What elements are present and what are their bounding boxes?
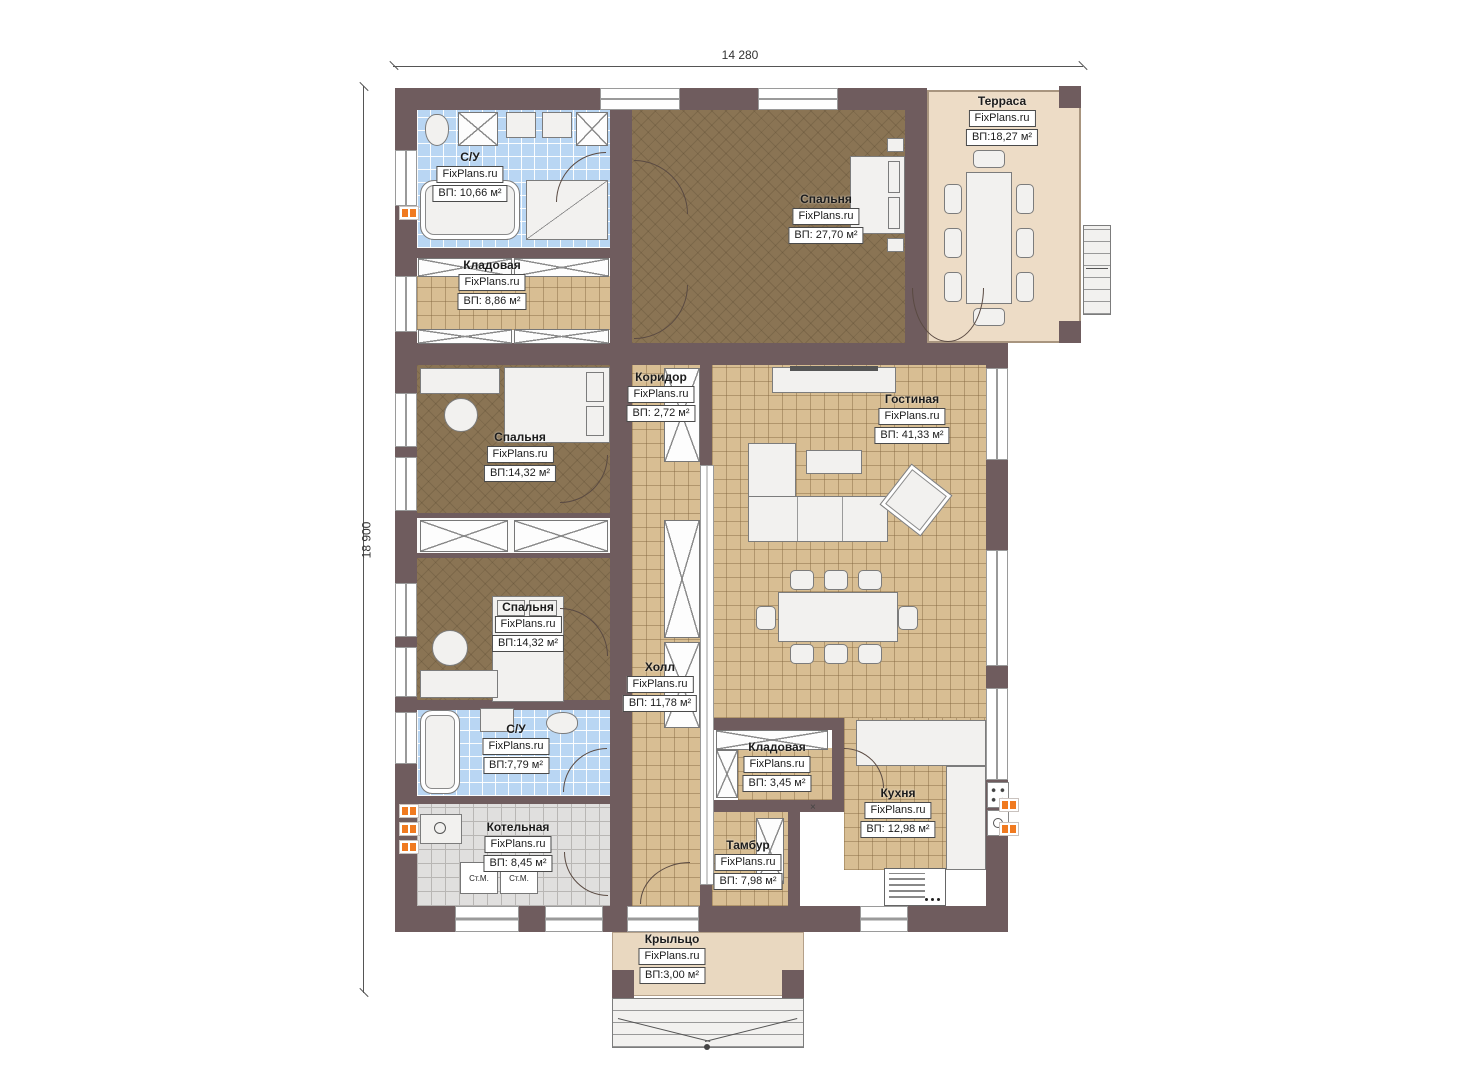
chair	[824, 570, 848, 590]
room-name: Гостиная	[885, 392, 939, 406]
room-name: С/У	[460, 150, 479, 164]
sofa-seat	[748, 496, 888, 542]
room-label-hall: Холл FixPlans.ru ВП: 11,78 м²	[623, 660, 697, 712]
room-label-bathroom-top: С/У FixPlans.ru ВП: 10,66 м²	[432, 150, 507, 202]
dimension-tick	[359, 82, 368, 91]
tv	[790, 366, 878, 371]
room-label-bedroom-top: Спальня FixPlans.ru ВП: 27,70 м²	[788, 192, 863, 244]
radiator	[999, 822, 1019, 836]
shelving	[514, 258, 609, 277]
room-area: ВП: 12,98 м²	[860, 821, 935, 838]
chair	[824, 644, 848, 664]
radiator	[399, 804, 419, 818]
chair	[858, 570, 882, 590]
room-area: ВП: 7,98 м²	[713, 873, 782, 890]
window	[860, 906, 908, 932]
floor-drain-mark: ×	[810, 802, 816, 813]
chair	[1016, 184, 1034, 214]
wall-storage-small-bottom	[712, 800, 844, 812]
pillow	[586, 372, 604, 402]
coffee-table	[806, 450, 862, 474]
pillow	[888, 197, 900, 229]
chair	[756, 606, 776, 630]
window	[758, 88, 838, 110]
toilet	[425, 114, 449, 146]
watermark: FixPlans.ru	[714, 854, 781, 871]
room-area: ВП: 8,86 м²	[457, 293, 526, 310]
window	[455, 906, 519, 932]
watermark: FixPlans.ru	[494, 616, 561, 633]
window	[545, 906, 603, 932]
room-area: ВП: 8,45 м²	[483, 855, 552, 872]
terrace-post	[1059, 321, 1081, 343]
radiator	[999, 798, 1019, 812]
room-area: ВП: 11,78 м²	[623, 695, 697, 712]
watermark: FixPlans.ru	[436, 166, 503, 183]
window	[986, 368, 1008, 460]
wall-wardrobe-band-bottom	[417, 553, 610, 558]
kitchen-counter-top	[856, 720, 986, 766]
room-name: С/У	[506, 722, 525, 736]
shelving	[418, 329, 512, 344]
room-area: ВП: 2,72 м²	[626, 405, 695, 422]
room-area: ВП:18,27 м²	[966, 129, 1038, 146]
wall-wardrobe-band-top	[417, 513, 610, 518]
room-name: Тамбур	[726, 838, 770, 852]
room-label-storage-small: Кладовая FixPlans.ru ВП: 3,45 м²	[742, 740, 811, 792]
room-area: ВП:7,79 м²	[483, 757, 549, 774]
wall-storage-small-top	[712, 718, 844, 730]
room-label-porch: Крыльцо FixPlans.ru ВП:3,00 м²	[638, 932, 705, 984]
wall-vestibule-right	[788, 812, 800, 906]
watermark: FixPlans.ru	[638, 948, 705, 965]
wall-bathroom-low-bottom	[417, 796, 610, 804]
floor-plan-canvas: 14 280 18 900	[0, 0, 1474, 1080]
entry-door-opening	[627, 906, 699, 932]
wardrobe	[514, 520, 608, 552]
wall-inner-vertical-main	[610, 110, 632, 906]
terrace-table	[966, 172, 1012, 304]
terrace-steps	[1083, 225, 1111, 315]
desk-chair	[444, 398, 478, 432]
wall-bathroom-top-bottom	[417, 248, 610, 258]
desk-chair	[432, 630, 468, 666]
watermark: FixPlans.ru	[864, 802, 931, 819]
room-area: ВП: 10,66 м²	[432, 185, 507, 202]
wall-inner-horizontal-main	[417, 343, 1008, 365]
window	[395, 712, 417, 764]
chair	[1016, 272, 1034, 302]
watermark: FixPlans.ru	[626, 676, 693, 693]
watermark: FixPlans.ru	[792, 208, 859, 225]
nightstand	[887, 238, 904, 252]
porch-arrow-dot	[704, 1044, 710, 1050]
watermark: FixPlans.ru	[627, 386, 694, 403]
pillow	[888, 161, 900, 193]
room-name: Спальня	[502, 600, 554, 614]
chair	[858, 644, 882, 664]
room-name: Крыльцо	[645, 932, 700, 946]
window	[395, 276, 417, 332]
porch-post	[782, 970, 804, 998]
window	[395, 457, 417, 511]
boiler-sink-basin	[434, 822, 446, 834]
room-area: ВП:14,32 м²	[484, 465, 556, 482]
room-area: ВП: 41,33 м²	[874, 427, 949, 444]
radiator	[399, 840, 419, 854]
wardrobe	[420, 520, 508, 552]
chair	[944, 184, 962, 214]
window	[600, 88, 680, 110]
desk	[420, 670, 498, 698]
room-label-vestibule: Тамбур FixPlans.ru ВП: 7,98 м²	[713, 838, 782, 890]
room-name: Кладовая	[463, 258, 520, 272]
room-name: Коридор	[635, 370, 687, 384]
sink	[506, 112, 536, 138]
room-label-bathroom-low: С/У FixPlans.ru ВП:7,79 м²	[482, 722, 549, 774]
washer-label: Ст.М.	[509, 874, 529, 883]
terrace-post	[1059, 86, 1081, 108]
wall-partition-cap	[700, 885, 712, 906]
dining-table	[778, 592, 898, 642]
room-label-corridor: Коридор FixPlans.ru ВП: 2,72 м²	[626, 370, 695, 422]
watermark: FixPlans.ru	[968, 110, 1035, 127]
cabinet	[576, 112, 608, 146]
terrace-steps-arrow	[1086, 268, 1108, 269]
chair	[973, 150, 1005, 168]
room-name: Терраса	[978, 94, 1026, 108]
room-label-boiler: Котельная FixPlans.ru ВП: 8,45 м²	[483, 820, 552, 872]
wall-storage-small-right	[832, 718, 844, 812]
watermark: FixPlans.ru	[484, 836, 551, 853]
window	[986, 550, 1008, 666]
wardrobe	[664, 520, 700, 638]
window	[395, 393, 417, 447]
room-name: Спальня	[494, 430, 546, 444]
window	[395, 150, 417, 206]
glass-partition-hall-living	[700, 465, 714, 885]
pillow	[586, 406, 604, 436]
window	[395, 647, 417, 697]
room-label-terrace: Терраса FixPlans.ru ВП:18,27 м²	[966, 94, 1038, 146]
watermark: FixPlans.ru	[743, 756, 810, 773]
bathtub	[420, 710, 460, 794]
dimension-width-label: 14 280	[722, 48, 759, 62]
watermark: FixPlans.ru	[482, 738, 549, 755]
watermark: FixPlans.ru	[458, 274, 525, 291]
room-label-kitchen: Кухня FixPlans.ru ВП: 12,98 м²	[860, 786, 935, 838]
room-label-bedroom-mid: Спальня FixPlans.ru ВП:14,32 м²	[484, 430, 556, 482]
toilet	[546, 712, 578, 734]
room-label-storage-top: Кладовая FixPlans.ru ВП: 8,86 м²	[457, 258, 526, 310]
desk	[420, 368, 500, 394]
room-name: Кладовая	[748, 740, 805, 754]
room-name: Кухня	[880, 786, 915, 800]
room-area: ВП:14,32 м²	[492, 635, 564, 652]
radiator	[399, 822, 419, 836]
room-area: ВП: 27,70 м²	[788, 227, 863, 244]
dishwasher	[884, 868, 946, 906]
washer-label: Ст.М.	[469, 874, 489, 883]
shelving	[514, 329, 609, 344]
sink	[542, 112, 572, 138]
room-label-bedroom-low: Спальня FixPlans.ru ВП:14,32 м²	[492, 600, 564, 652]
chair	[790, 644, 814, 664]
room-area: ВП:3,00 м²	[639, 967, 705, 984]
dimension-tick	[359, 988, 368, 997]
watermark: FixPlans.ru	[878, 408, 945, 425]
watermark: FixPlans.ru	[486, 446, 553, 463]
room-area: ВП: 3,45 м²	[742, 775, 811, 792]
room-label-living: Гостиная FixPlans.ru ВП: 41,33 м²	[874, 392, 949, 444]
room-name: Холл	[645, 660, 675, 674]
room-name: Котельная	[487, 820, 550, 834]
chair	[790, 570, 814, 590]
nightstand	[887, 138, 904, 152]
chair	[1016, 228, 1034, 258]
porch-post	[612, 970, 634, 998]
room-name: Спальня	[800, 192, 852, 206]
dimension-height-label: 18 900	[359, 522, 373, 559]
chair	[898, 606, 918, 630]
radiator	[399, 206, 419, 220]
chair	[944, 228, 962, 258]
window	[986, 688, 1008, 780]
cabinet	[458, 112, 498, 146]
kitchen-counter-right	[946, 766, 986, 870]
shelving	[716, 750, 738, 798]
wall-corridor-right	[700, 365, 712, 465]
dimension-line-top	[393, 66, 1083, 67]
window	[395, 583, 417, 637]
